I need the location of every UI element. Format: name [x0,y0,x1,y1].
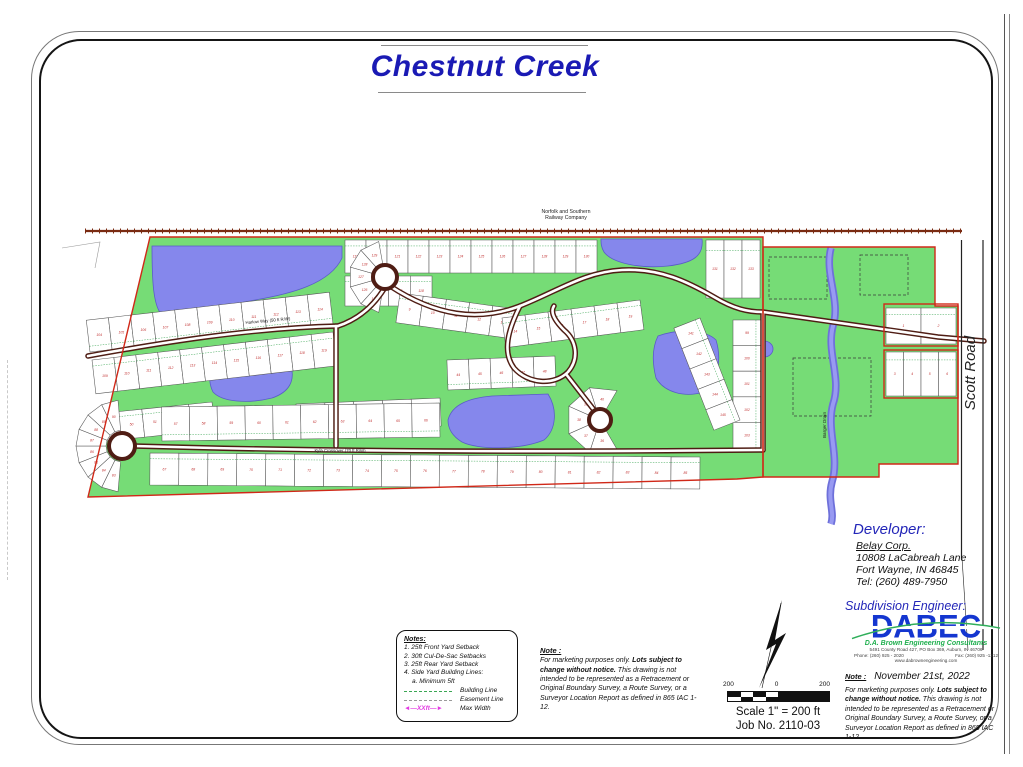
lot-number: 111 [146,369,151,373]
lot-number: 103 [744,433,750,437]
lot-number: 99 [745,331,749,335]
lot-number: 126 [362,288,368,292]
dabec-swoosh-icon [850,609,1002,645]
lot-number: 125 [479,255,485,259]
lot-number: 115 [234,359,240,363]
lot-number: 118 [299,351,305,355]
lot-number: 77 [452,469,456,473]
culdesac-west [109,433,135,459]
scalebar-tick: 0 [775,681,779,688]
note-text: For marketing purposes only. [845,687,935,694]
scale-text: Scale 1" = 200 ft [713,706,843,718]
date-note-heading: Note : [845,672,866,681]
lot-number: 129 [372,254,378,258]
lot-number: 124 [458,255,464,259]
notes-box: Notes: 1. 25ft Front Yard Setback 2. 30f… [396,630,518,722]
lot-number: 100 [744,357,750,361]
lot-number: 90 [112,415,116,419]
lot-number: 71 [278,468,282,472]
lot-number: 118 [418,289,424,293]
notes-item: 2. 30ft Cul-De-Sac Setbacks [404,653,510,661]
lot-number: 9 [409,308,411,312]
lot-number: 83 [626,471,630,475]
max-width-arrow-symbol: XXft [404,705,456,713]
center-note: Note : For marketing purposes only. Lots… [540,646,702,713]
lot-number: 45 [478,372,482,376]
developer-heading: Developer: [853,521,926,538]
lot-number: 114 [317,308,323,312]
lot-number: 109 [102,374,108,378]
lot-number: 79 [510,470,514,474]
lot-number: 112 [273,313,279,317]
lot-number: 72 [307,468,311,472]
lot-number: 85 [684,471,688,475]
legend-label: Max Width [460,705,491,713]
developer-tel: Tel: (260) 489-7950 [856,576,1006,588]
legend-row-max-width: XXft Max Width [404,704,510,713]
lot-number: 57 [174,422,178,426]
north-arrow-blade [759,600,786,688]
lot-number: 19 [629,315,633,319]
note-text: For marketing purposes only. [540,657,630,664]
north-arrow [759,600,786,688]
developer-name: Belay Corp. [856,540,1006,552]
lot-number: 144 [712,393,718,397]
lot-number: 131 [712,267,718,271]
railway-label-line2: Railway Company [545,215,587,221]
lot-number: 145 [720,413,726,417]
culdesac-center [589,409,611,431]
developer-address1: 10808 LaCabreah Lane [856,552,1006,564]
lot-number: 12 [477,317,481,321]
lot-number: 36 [600,439,604,443]
lot-number: 2 [937,324,940,328]
scalebar-checker [728,692,778,701]
lot-number: 130 [584,255,590,259]
legend-label: Easement Line [460,696,503,704]
lot-number: 105 [118,330,124,334]
notes-item: 1. 25ft Front Yard Setback [404,644,510,652]
lot-number: 114 [212,361,218,365]
building-line-symbol [404,687,456,695]
lot-number: 44 [456,373,460,377]
legend-row-easement-line: Easement Line [404,695,510,704]
notes-item: 4. Side Yard Building Lines: [404,669,510,677]
lot-number: 86 [90,450,94,454]
lot-number: 6 [946,372,948,376]
lot-number: 106 [141,328,147,332]
scalebar-ticks: 200 0 200 [723,681,830,688]
lot-number: 84 [655,471,659,475]
lot-number: 67 [162,467,166,471]
lot-number: 40 [600,397,604,401]
lot-number: 70 [249,468,253,472]
culdesac-north [373,265,397,289]
lot-number: 116 [256,356,262,360]
notes-item: 3. 25ft Rear Yard Setback [404,661,510,669]
lot-number: 68 [191,468,195,472]
street-label-kyla: Kyla Crossover (70 ft R/W) [314,448,366,453]
lot-number: 17 [583,321,587,325]
lot-number: 66 [424,418,428,422]
engineer-fax: Fax: (260) 925 -1212 [955,653,998,658]
lot-number: 129 [563,255,569,259]
lot-number: 50 [130,423,134,427]
lot-number: 61 [285,420,289,424]
scalebar [727,691,830,702]
lot-number: 109 [207,320,213,324]
legend-label: Building Line [460,687,497,695]
lot-number: 38 [577,418,581,422]
lot-number: 18 [606,318,610,322]
lot-number: 46 [500,371,504,375]
scalebar-solid [778,692,829,701]
lot-number: 10 [431,311,435,315]
lot-number: 113 [295,310,301,314]
lot-number: 113 [190,364,196,368]
lot-number: 81 [568,470,572,474]
lot-number: 51 [153,420,157,424]
lot-number: 83 [112,474,116,478]
note-heading: Note : [540,646,702,656]
lot-number: 76 [423,469,427,473]
job-number: Job No. 2110-03 [713,720,843,732]
lot-number: 127 [521,255,527,259]
scalebar-tick: 200 [723,681,734,688]
lot-number: 63 [341,420,345,424]
lot-number: 65 [396,419,400,423]
lot-number: 101 [744,382,750,386]
developer-address2: Fort Wayne, IN 46845 [856,564,1006,576]
lot-number: 128 [542,255,548,259]
right-note: For marketing purposes only. Lots subjec… [845,686,997,743]
lot-number: 75 [394,469,398,473]
title-rule-top [381,45,588,46]
lot-number: 121 [395,255,401,259]
drawing-date: November 21st, 2022 [874,671,970,682]
lot-number: 58 [202,422,206,426]
lot-number: 132 [730,267,736,271]
lot-number: 15 [537,327,541,331]
lot-number: 127 [358,275,364,279]
lot-number: 110 [124,371,130,375]
lot-number: 122 [416,255,422,259]
barger-drain-label: Barger Drain [822,412,827,438]
lot-number: 141 [688,332,694,336]
lot-number: 119 [321,348,327,352]
lot-number: 102 [744,408,750,412]
legend-row-building-line: Building Line [404,686,510,695]
lot-number: 143 [704,372,710,376]
lot-number: 117 [277,353,283,357]
lot-number: 1 [903,324,905,328]
lot-number: 78 [481,470,485,474]
lot-number: 84 [102,469,106,473]
lot-number: 59 [229,421,233,425]
lot-number: 69 [220,468,224,472]
lot-number: 5 [929,372,931,376]
notes-item-sub: a. Minimum 5ft [404,678,510,686]
lot-number: 112 [168,366,174,370]
lot-number: 107 [163,325,169,329]
scott-road-label: Scott Road [962,335,979,410]
lot-number: 128 [362,262,368,266]
lot-number: 87 [90,439,94,443]
title-rule-bottom [378,92,586,93]
scott-road-layer [962,240,984,650]
easement-line-symbol [404,696,456,704]
lot-number: 80 [539,470,543,474]
lot-number: 60 [257,421,261,425]
lot-number: 14 [514,330,518,334]
date-row: Note : November 21st, 2022 [845,671,1005,682]
lot-number: 110 [229,318,235,322]
lot-number: 74 [365,469,369,473]
lot-number: 4 [911,372,913,376]
lot-number: 62 [313,420,317,424]
lot-number: 48 [543,370,547,374]
lot-number: 37 [584,434,588,438]
engineer-website: www.dabrownengineering.com [850,658,1002,664]
page-title: Chestnut Creek [350,50,620,84]
lot-number: 104 [96,333,102,337]
lot-number: 88 [94,428,98,432]
scalebar-tick: 200 [819,681,830,688]
lot-number: 82 [597,470,601,474]
lot-number: 142 [696,352,702,356]
lot-number: 3 [894,372,896,376]
notes-heading: Notes: [404,635,510,644]
lot-number: 64 [368,419,372,423]
engineer-logo-block: DABEC D.A. Brown Engineering Consultants… [850,612,1002,665]
dabec-logo: DABEC [850,611,1002,643]
lot-number: 73 [336,469,340,473]
lot-number: 123 [437,255,443,259]
survey-tick [62,242,100,268]
lot-number: 108 [185,323,191,327]
plat-sheet: 1191201211221231241251261271281291301151… [0,0,1023,767]
lot-number: 133 [748,267,754,271]
lot-number: 126 [500,255,506,259]
